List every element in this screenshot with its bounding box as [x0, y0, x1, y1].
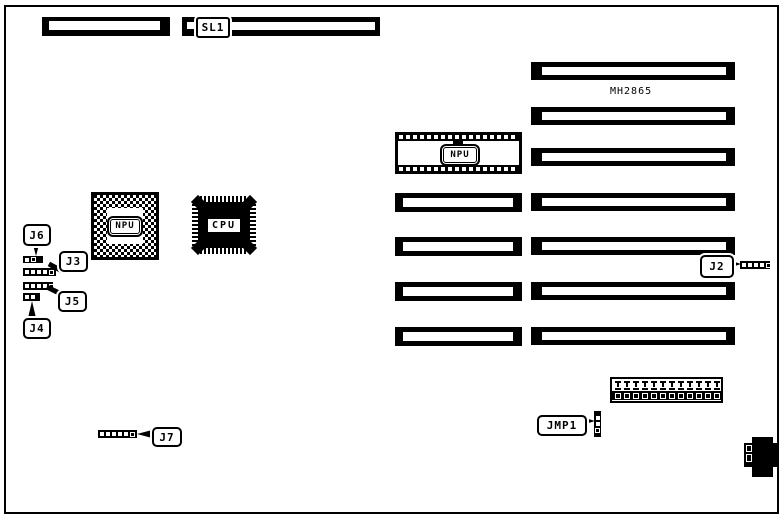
pin-block-pins — [612, 379, 721, 387]
jumper-pin-filled — [25, 258, 29, 262]
socket-pin-row — [399, 167, 518, 171]
jumper-pin-open — [595, 428, 600, 433]
cpu-leads-bottom — [200, 248, 248, 254]
pin-sock — [642, 393, 648, 399]
jumper-pin-open — [49, 270, 54, 275]
cpu-chip: CPU — [192, 196, 256, 254]
pin-dash — [669, 388, 675, 390]
jumper-pin-filled — [596, 422, 600, 426]
board-id-text: MH2865 — [610, 87, 652, 97]
jumper-pin-filled — [118, 432, 122, 436]
pin-cross — [633, 380, 639, 387]
expansion-slot — [531, 327, 735, 345]
jumper-pin-filled — [106, 432, 110, 436]
j4-pointer — [28, 301, 36, 318]
slot-stripe — [403, 287, 513, 296]
pin-dash — [615, 388, 621, 390]
pin-cross — [615, 380, 621, 387]
pin-dash — [687, 388, 693, 390]
jumper-pin-open — [766, 263, 771, 268]
expansion-slot — [531, 62, 735, 80]
j5-label: J5 — [58, 291, 87, 312]
pin-cross — [696, 380, 702, 387]
jumper-pin-filled — [43, 270, 47, 274]
din-pin — [746, 445, 752, 452]
pin-cross — [705, 380, 711, 387]
slot-stripe — [542, 287, 726, 295]
jumper-pin-filled — [112, 432, 116, 436]
pin-sock — [651, 393, 657, 399]
jumper-pin-filled — [31, 295, 35, 299]
jumper-pin-filled — [754, 263, 758, 267]
jumper-pin-filled — [25, 270, 29, 274]
jumper-pin-filled — [25, 284, 29, 288]
cpu-leads-right — [250, 204, 256, 246]
expansion-slot — [395, 237, 522, 256]
pin-cross — [660, 380, 666, 387]
pin-dash — [678, 388, 684, 390]
pin-dash — [705, 388, 711, 390]
pin-sock — [696, 393, 702, 399]
pin-sock — [705, 393, 711, 399]
jumper-pin-filled — [37, 284, 41, 288]
memory-slot-1 — [42, 17, 170, 36]
pin-sock — [615, 393, 621, 399]
jumper-pin-filled — [100, 432, 104, 436]
din-pin — [746, 454, 752, 462]
j3-jumper — [23, 268, 56, 276]
jumper-pin-filled — [596, 416, 600, 420]
pin-sock — [714, 393, 720, 399]
jumper-pin-filled — [25, 295, 29, 299]
jumper-pin-block — [610, 377, 723, 403]
npu-chip-label: NPU — [107, 216, 143, 237]
pin-cross — [687, 380, 693, 387]
slot-stripe — [542, 67, 726, 75]
j3-label: J3 — [59, 251, 88, 272]
slot-stripe — [49, 21, 160, 30]
jumper-pin-filled — [742, 263, 746, 267]
expansion-slot — [395, 282, 522, 301]
jumper-pin-filled — [748, 263, 752, 267]
pin-block-sockets — [612, 391, 721, 400]
j7-pointer — [137, 430, 152, 438]
jumper-pin-filled — [760, 263, 764, 267]
slot-stripe — [403, 242, 513, 251]
pin-sock — [633, 393, 639, 399]
pin-cross — [651, 380, 657, 387]
jumper-pin-filled — [124, 432, 128, 436]
j2-label: J2 — [700, 255, 734, 278]
slot-stripe — [542, 198, 726, 206]
pin-sock — [660, 393, 666, 399]
npu-socket-label: NPU — [440, 144, 480, 166]
slot-stripe — [227, 22, 375, 30]
pin-cross — [678, 380, 684, 387]
expansion-slot — [531, 282, 735, 300]
jmp1-jumper — [594, 411, 601, 437]
j7-jumper — [98, 430, 137, 438]
j6-label: J6 — [23, 224, 51, 246]
jumper-pin-open — [130, 432, 135, 437]
slot-stripe — [403, 198, 513, 207]
jumper-pin-filled — [31, 270, 35, 274]
j6-jumper — [23, 256, 43, 263]
j4-jumper — [23, 293, 40, 301]
expansion-slot — [531, 148, 735, 166]
slot-stripe — [403, 332, 513, 341]
pin-cross — [714, 380, 720, 387]
expansion-slot — [395, 327, 522, 346]
pin-cross — [642, 380, 648, 387]
pin-dash — [624, 388, 630, 390]
jmp1-label: JMP1 — [537, 415, 587, 436]
sl1-pin1-marker — [187, 22, 194, 29]
pin-dash — [633, 388, 639, 390]
npu-chip-center: NPU — [107, 208, 143, 244]
sl1-label: SL1 — [196, 17, 230, 38]
pin-dash — [714, 388, 720, 390]
pin-dash — [696, 388, 702, 390]
j4-label: J4 — [23, 318, 51, 339]
din-connector-bottom — [752, 467, 773, 477]
jumper-pin-filled — [37, 270, 41, 274]
npu-socket: NPU — [395, 132, 522, 174]
pin-sock — [669, 393, 675, 399]
slot-stripe — [542, 112, 726, 120]
pin-dash — [660, 388, 666, 390]
pin-cross — [624, 380, 630, 387]
slot-stripe — [542, 332, 726, 340]
j7-label: J7 — [152, 427, 182, 447]
expansion-slot — [531, 107, 735, 125]
pin-sock — [687, 393, 693, 399]
jumper-pin-open — [31, 257, 36, 262]
expansion-slot — [531, 193, 735, 211]
expansion-slot — [395, 193, 522, 212]
motherboard-diagram: SL1 MH2865 NPU NPU CPU — [0, 0, 784, 520]
din-connector-top — [752, 437, 773, 443]
j2-jumper — [740, 261, 770, 269]
slot-stripe — [542, 242, 726, 250]
pin-sock — [678, 393, 684, 399]
pin-cross — [669, 380, 675, 387]
memory-slot-sl1: SL1 — [182, 17, 380, 36]
expansion-slot — [531, 237, 735, 255]
pin-block-dashes — [612, 387, 721, 390]
pin-dash — [642, 388, 648, 390]
slot-stripe — [542, 153, 726, 161]
pin-sock — [624, 393, 630, 399]
npu-chip: NPU — [91, 192, 159, 260]
jumper-pin-filled — [31, 284, 35, 288]
pin-dash — [651, 388, 657, 390]
cpu-chip-label: CPU — [207, 218, 241, 233]
